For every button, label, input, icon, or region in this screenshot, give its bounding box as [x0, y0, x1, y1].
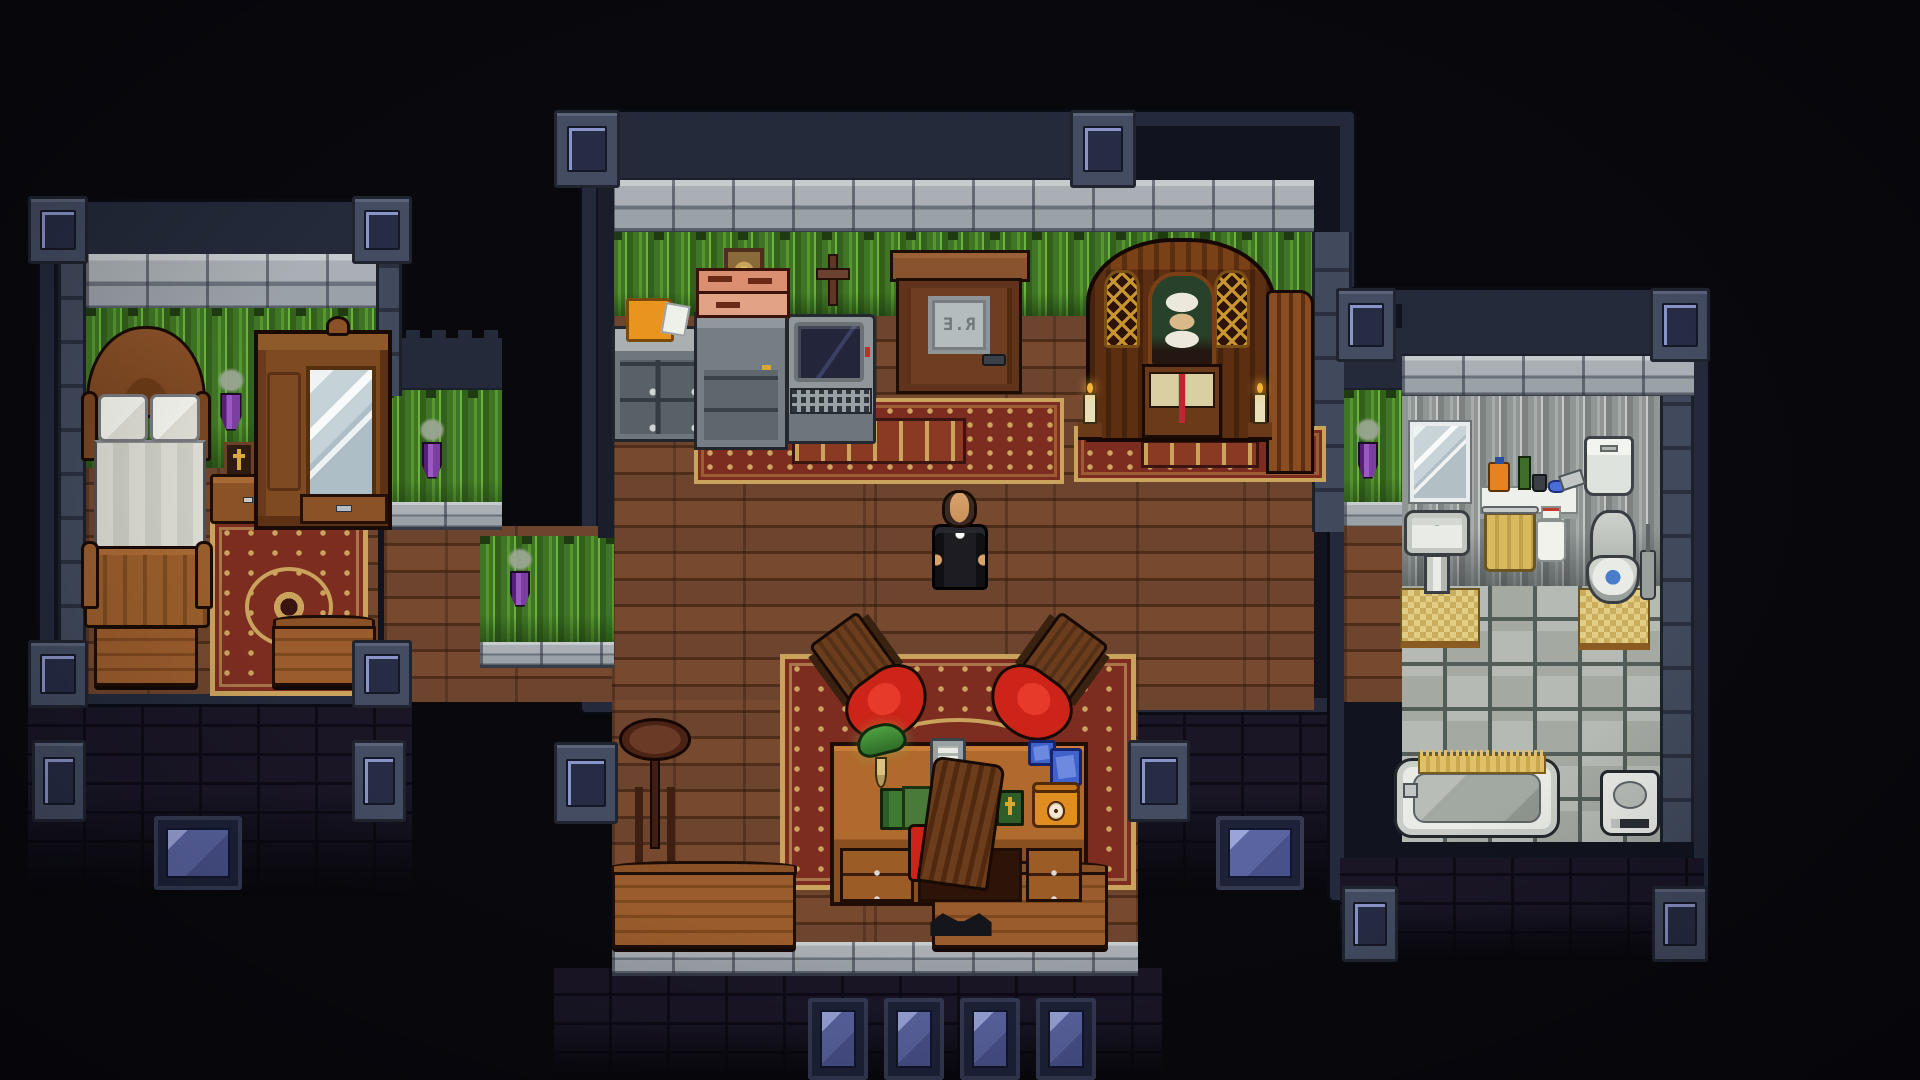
- altar-gold-lattice-right: [1214, 270, 1250, 348]
- pillar-left-room-br: [352, 640, 412, 708]
- game-stage: R.E: [0, 0, 1920, 1080]
- pillar-left-facade-r: [352, 740, 406, 822]
- office-window-4: [1036, 998, 1096, 1080]
- toilet-paper[interactable]: [1536, 520, 1566, 562]
- terminal-screen: [794, 322, 864, 382]
- pillar-office-tr: [1070, 110, 1136, 188]
- bathroom-wall-east: [1660, 396, 1694, 842]
- office-stone-ledge: [612, 180, 1314, 234]
- left-room-side-wall-west: [58, 256, 86, 692]
- office-window-3: [960, 998, 1020, 1080]
- alcove-sconce: [502, 544, 538, 608]
- altar-candle-left: [1078, 382, 1102, 440]
- desk-drawers-left[interactable]: [840, 848, 914, 902]
- pillar-left-room-tr: [352, 196, 412, 264]
- pillar-office-tl: [554, 110, 620, 188]
- filing-cabinet-small[interactable]: [612, 326, 704, 442]
- left-facade-window: [154, 816, 242, 890]
- altar-gold-lattice-left: [1104, 270, 1140, 348]
- stacked-boxes[interactable]: [696, 268, 790, 318]
- sink[interactable]: [1404, 510, 1470, 594]
- midright-facade-window: [1216, 816, 1304, 890]
- priest-character[interactable]: [932, 490, 988, 590]
- door-handle[interactable]: [982, 354, 1006, 366]
- toilet[interactable]: [1586, 510, 1640, 604]
- bedroom-cross-picture: [224, 442, 254, 478]
- wardrobe-drawer[interactable]: [300, 494, 388, 524]
- bedroom-sconce: [212, 364, 250, 432]
- telephone[interactable]: [1032, 786, 1080, 828]
- pillar-bathroom-br: [1652, 886, 1708, 962]
- wall-cross: [816, 254, 850, 306]
- pillar-bathroom-tl: [1336, 288, 1396, 362]
- pillar-left-room-bl: [28, 640, 88, 708]
- blue-folder-large[interactable]: [1050, 748, 1082, 786]
- altar-lectern[interactable]: [1142, 364, 1222, 438]
- alcove-wallpaper: [480, 536, 614, 648]
- pillar-bathroom-bl: [1342, 886, 1398, 962]
- terminal-keyboard[interactable]: [790, 388, 872, 414]
- office-window-2: [884, 998, 944, 1080]
- bath-mat-left: [1400, 588, 1480, 648]
- bed-pillow-left: [98, 394, 148, 442]
- hallway-right-sconce: [1350, 414, 1386, 480]
- door-window-text: R.E: [942, 317, 976, 334]
- filing-cabinet-tall[interactable]: [694, 312, 788, 450]
- desk-drawers-right[interactable]: [1026, 848, 1082, 902]
- alcove-ledge: [480, 642, 614, 668]
- pillar-left-facade-l: [32, 740, 86, 822]
- bankers-lamp[interactable]: [856, 724, 906, 788]
- bathroom-stone-ledge: [1402, 356, 1694, 398]
- bathroom-mirror: [1410, 422, 1470, 502]
- hallway-left-ledge: [384, 502, 502, 530]
- bidet[interactable]: [1600, 770, 1660, 836]
- desk-chair[interactable]: [916, 760, 1006, 936]
- bathtub-towel[interactable]: [1418, 754, 1546, 774]
- coat-rack[interactable]: [616, 718, 694, 860]
- toilet-cistern[interactable]: [1584, 436, 1634, 496]
- pillar-bathroom-tr: [1650, 288, 1710, 362]
- pillar-midright: [1128, 740, 1190, 822]
- hallway-right-floor: [1344, 526, 1402, 702]
- hand-towel[interactable]: [1484, 512, 1536, 572]
- office-bench-left[interactable]: [612, 870, 796, 948]
- altar-candle-right: [1248, 382, 1272, 440]
- wardrobe-mirror: [306, 366, 376, 508]
- altar-portrait: [1148, 272, 1216, 368]
- door-window: R.E: [928, 296, 990, 354]
- office-top-wall: [618, 122, 1132, 182]
- left-room-top-wall: [86, 210, 378, 258]
- pillar-office-bl: [554, 742, 618, 824]
- bed-pillow-right: [150, 394, 200, 442]
- bed-blanket[interactable]: [94, 440, 206, 556]
- bed-footboard: [84, 546, 210, 628]
- office-window-1: [808, 998, 868, 1080]
- toilet-brush[interactable]: [1640, 550, 1656, 600]
- hallway-left-sconce: [414, 414, 450, 480]
- orange-folder[interactable]: [626, 298, 674, 342]
- pillar-left-room-tl: [28, 196, 88, 264]
- pill-bottle[interactable]: [1488, 462, 1510, 492]
- bedroom-bench-left[interactable]: [94, 624, 198, 686]
- left-room-stone-ledge: [86, 254, 378, 312]
- green-bottle[interactable]: [1518, 456, 1531, 490]
- shaving-cup[interactable]: [1532, 474, 1547, 492]
- altar-side-cabinet: [1266, 290, 1314, 474]
